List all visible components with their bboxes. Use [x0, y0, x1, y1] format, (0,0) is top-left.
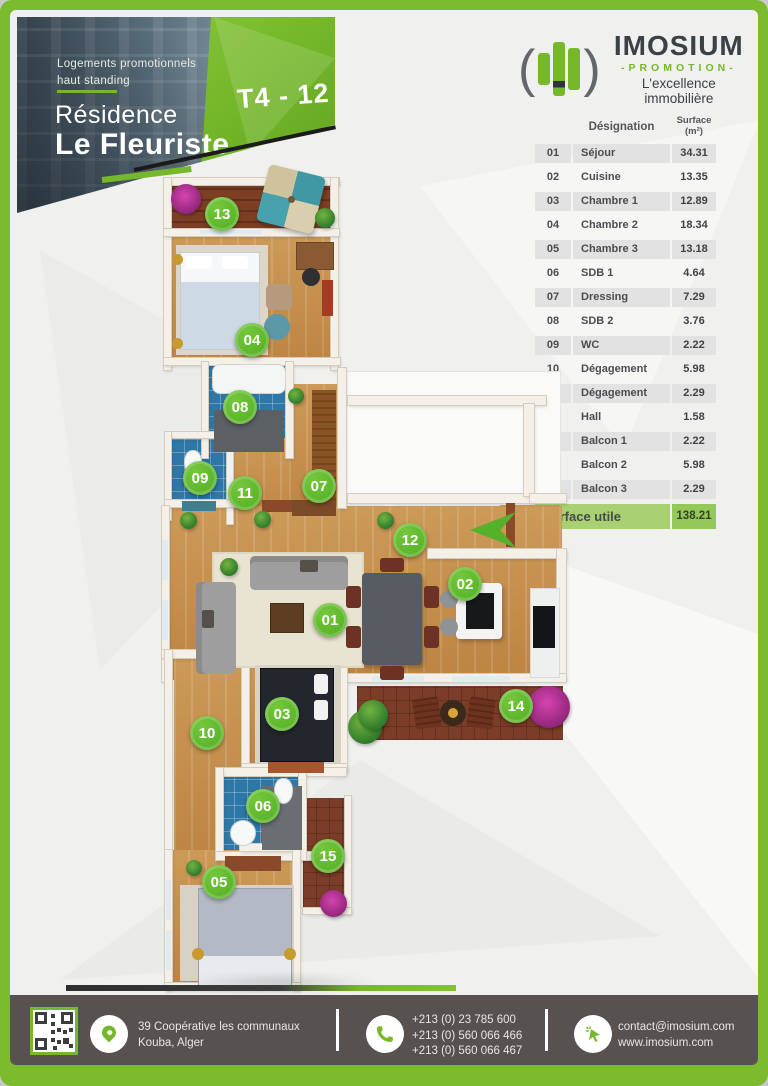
pouf: [266, 284, 292, 310]
wall: [524, 404, 534, 496]
footer-accent-line: [66, 985, 456, 991]
plant: [186, 860, 202, 876]
flower-pot: [171, 184, 201, 214]
footer-divider: [545, 1009, 548, 1051]
wall: [216, 768, 223, 860]
oven: [533, 606, 555, 648]
room-marker-07: 07: [302, 469, 336, 503]
window: [200, 230, 262, 234]
wall: [345, 796, 351, 914]
plant: [288, 388, 304, 404]
qr-pattern: [33, 1010, 75, 1052]
room-marker-01: 01: [313, 603, 347, 637]
sofa-cushion: [202, 610, 214, 628]
phone-number: +213 (0) 560 066 467: [412, 1045, 522, 1057]
bedside-lamp: [192, 948, 204, 960]
balcony-chair: [466, 696, 496, 729]
desk-chair: [302, 268, 320, 286]
wall: [348, 396, 546, 405]
qr-code: [30, 1007, 78, 1055]
footer-contact: contact@imosium.com www.imosium.com: [618, 1020, 734, 1051]
dining-chair: [346, 626, 361, 648]
wall: [331, 178, 338, 370]
footer-divider: [336, 1009, 339, 1051]
location-pin-circle: [90, 1015, 128, 1053]
room-marker-02: 02: [448, 567, 482, 601]
room-marker-06: 06: [246, 789, 280, 823]
stool: [440, 618, 458, 636]
plant: [358, 700, 388, 730]
phone-circle: [366, 1015, 404, 1053]
dining-chair: [380, 558, 404, 572]
poster-inner: Logements promotionnelshaut standing Rés…: [10, 10, 758, 1065]
phone-number: +213 (0) 23 785 600: [412, 1014, 516, 1026]
bedside-lamp: [172, 254, 183, 265]
sofa-cushion: [300, 560, 318, 572]
dining-chair: [380, 666, 404, 680]
wall: [530, 494, 566, 503]
wall: [338, 368, 346, 508]
room-marker-05: 05: [202, 865, 236, 899]
wall: [242, 660, 249, 768]
wall: [348, 494, 534, 503]
room-marker-13: 13: [205, 197, 239, 231]
window: [166, 880, 171, 920]
wall: [428, 549, 566, 558]
address-line1: 39 Coopérative les communaux: [138, 1021, 300, 1033]
console-table: [262, 500, 292, 512]
cursor-click-icon: [583, 1024, 603, 1044]
plant: [220, 558, 238, 576]
parasol-pole: [288, 196, 295, 203]
dresser: [225, 856, 281, 871]
bathtub: [212, 364, 286, 394]
pillow: [222, 256, 248, 269]
window: [162, 540, 168, 580]
location-pin-icon: [99, 1023, 119, 1043]
console-table: [182, 501, 216, 511]
room-marker-11: 11: [228, 476, 262, 510]
plant: [377, 512, 394, 529]
room-marker-15: 15: [311, 839, 345, 873]
wall: [293, 850, 300, 990]
desk: [296, 242, 334, 270]
wall: [164, 178, 171, 370]
room-marker-12: 12: [393, 523, 427, 557]
floor-plan: 010203040506070809101112131415: [10, 10, 758, 1065]
poster: Logements promotionnelshaut standing Rés…: [0, 0, 768, 1086]
wall: [286, 362, 293, 458]
balcony-lamp: [448, 708, 458, 718]
sink: [230, 820, 256, 846]
rug-runner: [322, 280, 333, 316]
cursor-circle: [574, 1015, 612, 1053]
plant: [254, 511, 271, 528]
balcony-chair: [412, 696, 442, 729]
sofa: [250, 556, 348, 590]
flower-pot: [320, 890, 347, 917]
window: [162, 600, 168, 640]
phone-icon: [375, 1024, 395, 1044]
room-marker-04: 04: [235, 323, 269, 357]
contact-email: contact@imosium.com: [618, 1021, 734, 1033]
window: [452, 676, 510, 681]
room-marker-08: 08: [223, 390, 257, 424]
contact-website: www.imosium.com: [618, 1037, 713, 1049]
window: [166, 930, 171, 970]
footer-phones: +213 (0) 23 785 600 +213 (0) 560 066 466…: [412, 1013, 522, 1060]
pillow: [314, 700, 328, 720]
bedside-lamp: [284, 948, 296, 960]
room-marker-03: 03: [265, 697, 299, 731]
footer-address: 39 Coopérative les communaux Kouba, Alge…: [138, 1020, 300, 1051]
plant: [315, 208, 335, 228]
coffee-table: [270, 603, 304, 633]
sofa: [196, 582, 236, 674]
pillow: [314, 674, 328, 694]
wall: [165, 650, 172, 850]
address-line2: Kouba, Alger: [138, 1037, 204, 1049]
bench: [268, 762, 324, 773]
bedside-lamp: [172, 338, 183, 349]
dining-table: [362, 573, 422, 665]
dining-chair: [424, 586, 439, 608]
dining-chair: [346, 586, 361, 608]
dining-chair: [424, 626, 439, 648]
pillow: [186, 256, 212, 269]
room-marker-10: 10: [190, 716, 224, 750]
flower-pot: [528, 686, 570, 728]
plant: [180, 512, 197, 529]
room-marker-09: 09: [183, 461, 217, 495]
room-marker-14: 14: [499, 689, 533, 723]
phone-number: +213 (0) 560 066 466: [412, 1030, 522, 1042]
wall: [202, 362, 208, 458]
